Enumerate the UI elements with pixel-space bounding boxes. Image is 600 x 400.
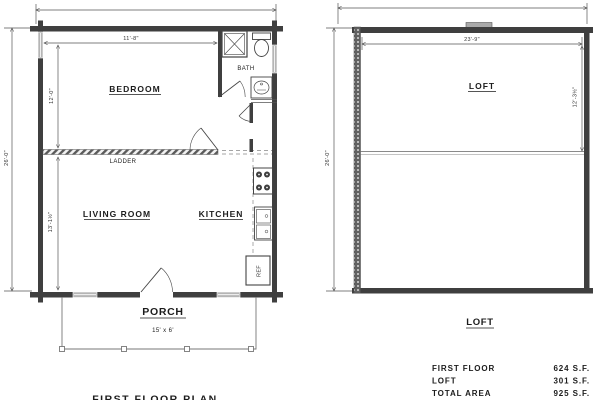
dim-label-loft-overall-depth: 26'-0" <box>325 150 331 166</box>
ladder-wall <box>43 150 218 155</box>
dim-label-first-floor-depth: 26'-0" <box>4 150 10 166</box>
first-floor-plan: 26'-0" <box>4 4 283 400</box>
bedroom-door <box>190 128 218 150</box>
dim-loft-overall-width <box>338 3 587 24</box>
dim-label-loft-depth: 12'-3½" <box>572 87 579 108</box>
bath-door <box>219 81 245 97</box>
toilet <box>253 33 271 57</box>
floor-plan-drawing: 26'-0" <box>0 0 600 400</box>
ladder-label: LADDER <box>110 159 137 165</box>
hall-wall-stub <box>250 103 254 123</box>
dim-label-living-depth: 13'-1½" <box>47 212 54 233</box>
room-label-bath: BATH <box>237 66 254 72</box>
front-door-opening <box>140 291 173 299</box>
kitchen-sink <box>255 207 273 240</box>
dim-first-floor-width <box>36 4 276 24</box>
floor-plan-document: 26'-0" <box>0 0 600 400</box>
room-label-kitchen: KITCHEN <box>199 209 244 219</box>
range <box>254 168 273 194</box>
dim-label-loft-width: 23'-9" <box>464 37 480 43</box>
area-row-label: TOTAL AREA <box>432 389 491 398</box>
bath-wall <box>218 31 222 97</box>
area-row-value: 301 S.F. <box>553 377 590 386</box>
area-row-label: LOFT <box>432 377 456 386</box>
kitchen-wall-stub <box>250 139 254 152</box>
exterior-walls <box>30 21 283 303</box>
porch-size-label: 15' x 6' <box>152 328 174 334</box>
area-row-value: 925 S.F. <box>553 389 590 398</box>
room-label-loft: LOFT <box>469 81 495 91</box>
loft-edge-line <box>361 152 585 155</box>
area-summary: FIRST FLOOR 624 S.F. LOFT 301 S.F. TOTAL… <box>432 364 590 398</box>
window-mullions <box>41 33 275 295</box>
area-row-value: 624 S.F. <box>553 364 590 373</box>
shower <box>222 31 247 57</box>
loft-log-wall <box>354 27 361 293</box>
dim-label-bedroom-depth: 12'-0" <box>49 88 55 104</box>
loft-plan-title: LOFT <box>466 317 494 328</box>
room-label-bedroom: BEDROOM <box>109 84 160 94</box>
ref-label: REF <box>257 265 263 277</box>
loft-plan: 26'-0" 23'-9" 12'-3½" LOFT LOF <box>325 3 593 328</box>
first-floor-plan-title: FIRST FLOOR PLAN <box>92 394 218 400</box>
loft-edge-dashed <box>222 151 272 155</box>
front-door <box>141 268 173 292</box>
bath-sink <box>251 77 272 98</box>
area-row-label: FIRST FLOOR <box>432 364 495 373</box>
loft-walls <box>352 27 593 294</box>
dim-label-bedroom-width: 11'-8" <box>123 36 138 42</box>
porch-label: PORCH <box>142 306 183 318</box>
room-label-living-room: LIVING ROOM <box>83 209 151 219</box>
